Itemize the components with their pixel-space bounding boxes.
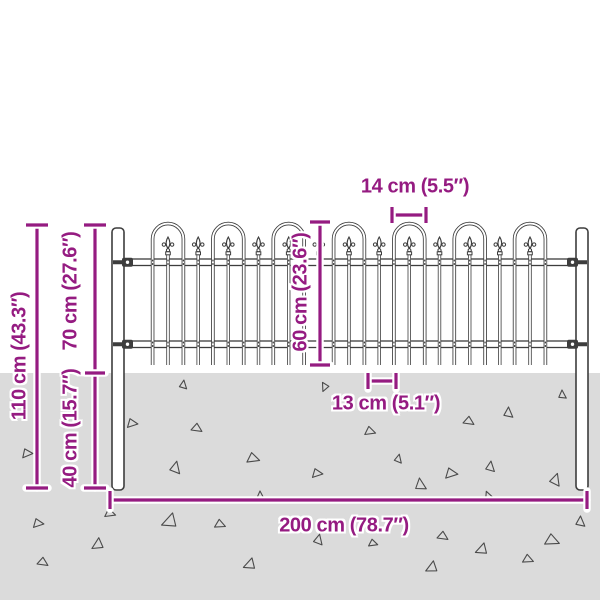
dim-label-total-height: 110 cm (43.3″) bbox=[9, 292, 32, 421]
dim-label-bar-spacing: 13 cm (5.1″) bbox=[332, 393, 440, 416]
dim-label-below-ground: 40 cm (15.7″) bbox=[60, 369, 83, 488]
dim-label-panel-height: 60 cm (23.6″) bbox=[290, 233, 313, 352]
dim-label-hoop-width: 14 cm (5.5″) bbox=[361, 176, 469, 199]
dim-label-total-width: 200 cm (78.7″) bbox=[279, 515, 409, 538]
dim-label-above-ground: 70 cm (27.6″) bbox=[60, 232, 83, 351]
diagram-stage: 14 cm (5.5″) 60 cm (23.6″) 13 cm (5.1″) … bbox=[0, 0, 600, 600]
